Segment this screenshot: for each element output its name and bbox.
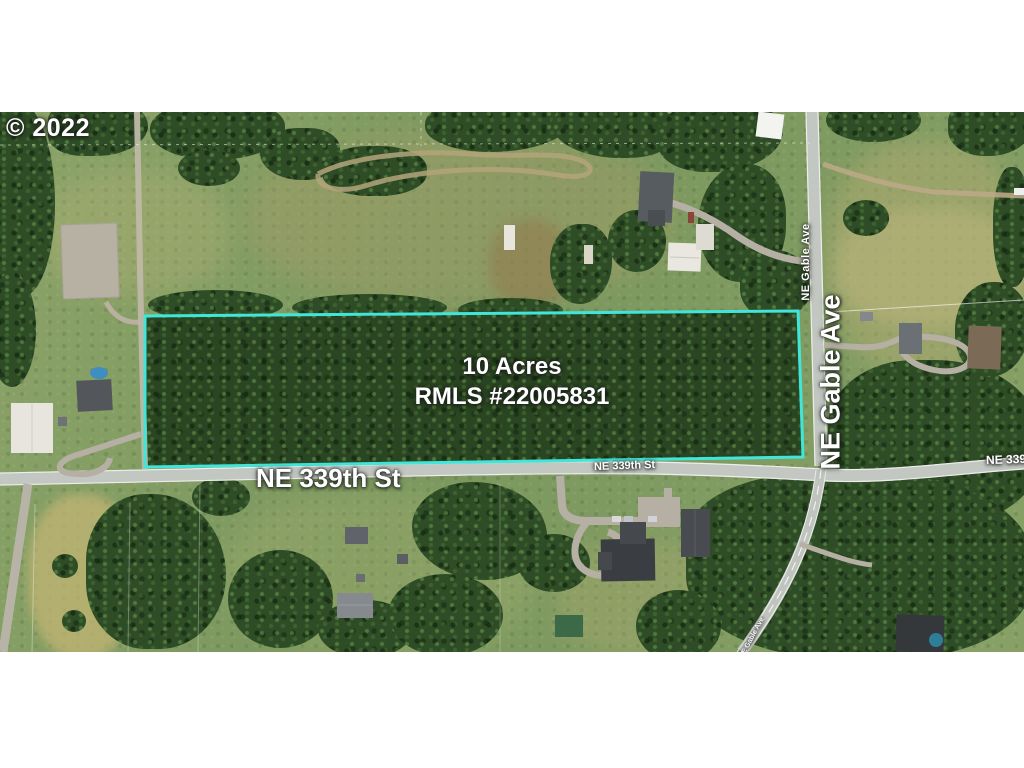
building <box>648 210 665 226</box>
vehicle <box>688 212 694 223</box>
building <box>504 225 515 250</box>
building <box>620 522 646 544</box>
parcel-mls-text: RMLS #22005831 <box>415 382 610 412</box>
street-label-ne-gable-on-road: NE Gable Ave <box>800 223 812 300</box>
building <box>756 112 785 139</box>
street-label-ne-339th-on-road: NE 339th St <box>594 459 656 473</box>
building <box>598 552 612 570</box>
parcel-area-text: 10 Acres <box>415 352 610 382</box>
building <box>584 245 593 264</box>
parcel-label: 10 Acres RMLS #22005831 <box>415 352 610 412</box>
building <box>356 574 365 582</box>
street-label-ne-339th-main: NE 339th St <box>256 463 401 494</box>
building <box>967 325 1001 369</box>
vehicle <box>624 516 633 522</box>
vehicle <box>1014 188 1024 195</box>
fence-line <box>32 504 35 652</box>
building <box>899 323 922 354</box>
dirt-paths-layer <box>106 153 1024 322</box>
vehicle <box>648 516 657 522</box>
power-line <box>830 300 1024 312</box>
road-bottom-left <box>3 484 28 652</box>
building <box>58 417 67 426</box>
pool <box>929 633 943 647</box>
building <box>397 554 408 564</box>
listing-flyer: © 2022 10 Acres RMLS #22005831 NE 339th … <box>0 0 1024 768</box>
building <box>696 224 714 250</box>
riding-arena <box>61 223 120 299</box>
parcel-dashed-line <box>0 143 810 145</box>
vehicle <box>612 516 621 522</box>
street-label-ne-339th-right-edge: NE 339th St <box>986 451 1024 467</box>
satellite-map: © 2022 10 Acres RMLS #22005831 NE 339th … <box>0 112 1024 652</box>
building <box>76 379 113 412</box>
fence-line <box>128 502 130 652</box>
building <box>345 527 368 544</box>
building <box>860 312 873 321</box>
street-label-ne-gable-main: NE Gable Ave <box>816 294 847 469</box>
fence-line <box>198 484 200 652</box>
pool <box>90 367 108 379</box>
copyright-watermark: © 2022 <box>6 114 90 143</box>
building <box>555 615 583 637</box>
